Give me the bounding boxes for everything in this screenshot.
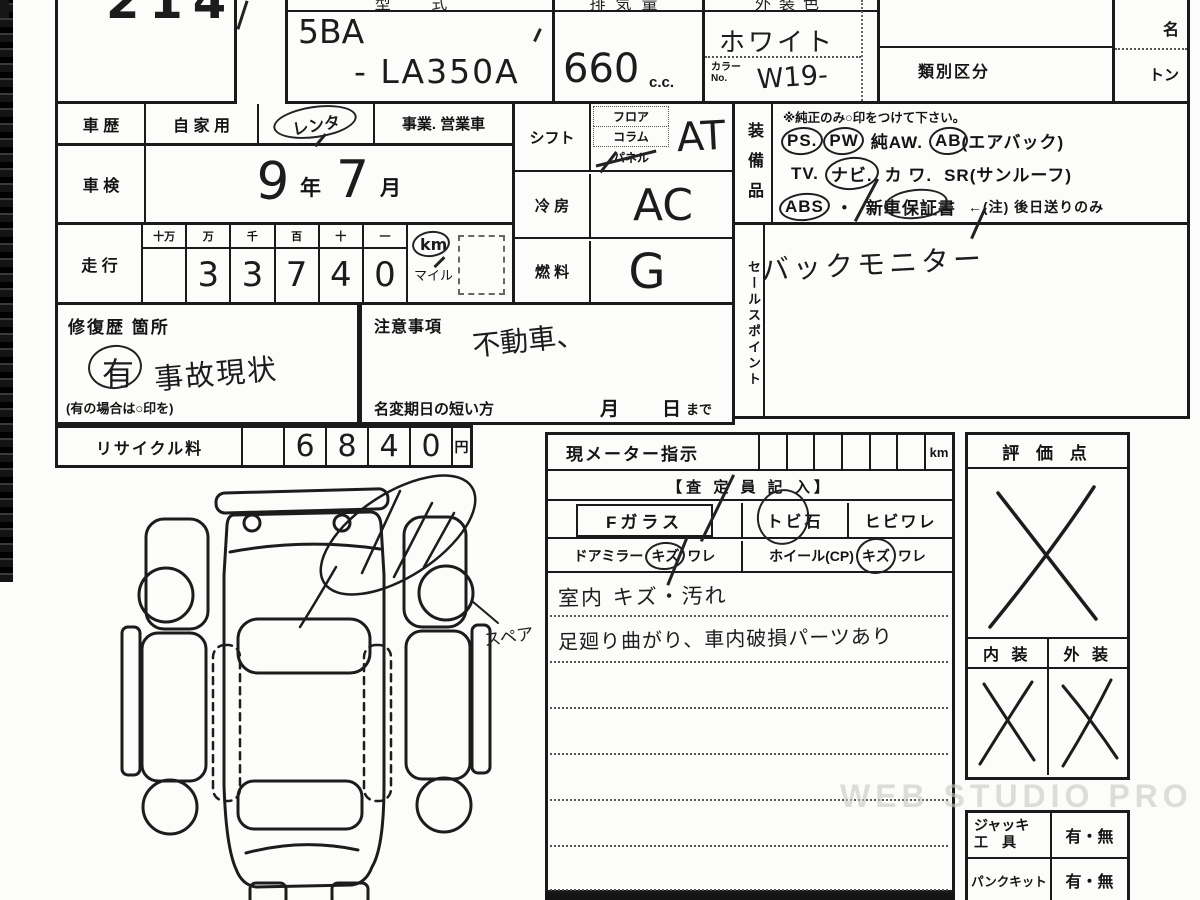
inspection-year-value: 9 bbox=[254, 151, 291, 213]
history-label: 車 歴 bbox=[58, 104, 146, 143]
mileage-col-1: 一 0 bbox=[364, 225, 408, 302]
side-strip-left bbox=[122, 627, 140, 775]
equipment-tv-text: TV. bbox=[791, 164, 819, 184]
assessor-notes: 室内 キズ・汚れ 足廻り曲がり、車内破損パーツあり bbox=[548, 575, 952, 893]
repair-value: 事故現状 bbox=[152, 346, 279, 399]
caution-label: 注意事項 bbox=[374, 313, 442, 337]
repair-label: 修復歴 箇所 bbox=[68, 313, 170, 338]
color-value: ホワイト bbox=[719, 22, 835, 59]
assessor-fglass-text: Fガラス bbox=[576, 504, 713, 537]
name-ton-cell: 名 トン bbox=[1115, 0, 1190, 104]
rename-label: 名変期日の短い方 bbox=[374, 398, 494, 419]
shift-option-column: コラム bbox=[593, 126, 669, 147]
color-cell: 外装色 ホワイト カラー No. W19- bbox=[705, 0, 880, 104]
meter-cell bbox=[896, 435, 924, 469]
notes-line-1: 室内 キズ・汚れ bbox=[558, 580, 728, 613]
history-option-business: 事業. 営業車 bbox=[375, 104, 512, 143]
mileage-header-10: 十 bbox=[320, 225, 362, 249]
front-seats bbox=[238, 619, 370, 673]
assessor-row-1: Fガラス トビ石 ヒビワレ bbox=[548, 503, 952, 539]
shift-option-panel: パネル bbox=[593, 147, 669, 168]
cooling-value: AC bbox=[591, 174, 735, 237]
interior-exterior-header: 内 装 外 装 bbox=[968, 637, 1127, 669]
displacement-unit: c.c. bbox=[649, 74, 674, 91]
caution-value: 不動車、 bbox=[470, 313, 586, 364]
jack-label-line2: 工 具 bbox=[974, 834, 1044, 851]
fuel-row: 燃 料 G bbox=[515, 241, 732, 302]
inspection-month-value: 7 bbox=[336, 150, 369, 210]
equipment-warranty-text: 新車保証書 bbox=[866, 199, 956, 218]
circle-mark bbox=[854, 536, 897, 575]
notes-line-2: 足廻り曲がり、車内破損パーツあり bbox=[558, 620, 893, 655]
mileage-digit-10k: 3 bbox=[187, 249, 229, 301]
jack-value: 有・無 bbox=[1052, 813, 1127, 857]
shift-label: シフト bbox=[515, 104, 591, 170]
sill-right-dashed bbox=[364, 645, 391, 801]
ruled-line bbox=[550, 615, 948, 617]
circle-mark bbox=[644, 540, 686, 571]
interior-mark-cell bbox=[968, 669, 1049, 775]
mileage-row: 走 行 十万 万 3 千 3 百 7 十 4 一 bbox=[55, 225, 515, 305]
jack-row: ジャッキ 工 具 有・無 bbox=[968, 813, 1127, 859]
assessor-crack-text: ヒビワレ bbox=[864, 508, 936, 532]
interior-x-mark bbox=[972, 674, 1042, 770]
ruled-line bbox=[550, 707, 948, 709]
ruled-line bbox=[550, 889, 948, 891]
mileage-header-100k: 十万 bbox=[143, 225, 185, 249]
shift-value: AT bbox=[667, 102, 734, 171]
inspection-row: 車 検 9 年 7 月 bbox=[55, 146, 515, 225]
mileage-dashed-box bbox=[458, 235, 505, 295]
mileage-header-1k: 千 bbox=[231, 225, 273, 249]
equipment-line-3: ABS ・ 新車保証書 ←(注) 後日送りのみ bbox=[785, 194, 1104, 219]
evaluation-x-mark bbox=[968, 469, 1127, 637]
ruled-line bbox=[550, 845, 948, 847]
repair-hint: (有の場合は○印を) bbox=[66, 398, 174, 417]
scan-artifact-blob bbox=[0, 0, 9, 18]
meter-cell bbox=[786, 435, 814, 469]
equipment-navi: ナビ. bbox=[831, 161, 873, 186]
front-marker-left bbox=[244, 515, 260, 531]
equipment-line-2: TV. ナビ. カ ワ. SR(サンルーフ) bbox=[791, 161, 1072, 186]
caution-box: 注意事項 不動車、 bbox=[360, 305, 735, 390]
spare-leader-line bbox=[472, 601, 498, 623]
history-option-rental: レンタ bbox=[259, 104, 375, 143]
rename-until: まで bbox=[686, 399, 712, 418]
ton-label: トン bbox=[1149, 64, 1179, 85]
sill-left-dashed bbox=[213, 645, 240, 801]
assessor-wheel-ware-text: ワレ bbox=[898, 546, 926, 566]
door-front-left bbox=[146, 519, 208, 629]
model-type-value-2: - LA350A bbox=[354, 52, 520, 91]
equipment-line-1: PS. PW 純AW. AB (エアバック) bbox=[787, 128, 1064, 153]
repair-box: 修復歴 箇所 有 事故現状 (有の場合は○印を) bbox=[55, 305, 360, 425]
shift-row: シフト フロア コラム パネル AT bbox=[515, 104, 732, 172]
sales-point-block: セールスポイント バックモニター bbox=[735, 225, 1190, 419]
color-no-value: W19- bbox=[756, 60, 829, 96]
rename-month: 月 bbox=[600, 394, 619, 421]
class-label: 類別区分 bbox=[918, 58, 990, 82]
equipment-dot: ・ bbox=[836, 194, 854, 219]
mileage-col-10k: 万 3 bbox=[187, 225, 231, 302]
interior-label: 内 装 bbox=[968, 639, 1049, 667]
equipment-warranty: 新車保証書 bbox=[866, 194, 956, 219]
inspection-year-unit: 年 bbox=[300, 172, 321, 202]
color-no-label-2: No. bbox=[711, 73, 741, 84]
ruled-line bbox=[550, 661, 948, 663]
assessor-header: 【査 定 員 記 入】 bbox=[548, 473, 952, 501]
shift-options: フロア コラム パネル bbox=[593, 106, 669, 170]
mileage-mile-unit: マイル bbox=[414, 265, 453, 284]
color-no-label-1: カラー bbox=[711, 62, 741, 73]
history-rental-text: レンタ bbox=[290, 108, 341, 140]
inspection-month-unit: 月 bbox=[380, 172, 401, 202]
color-label: 外装色 bbox=[705, 0, 877, 12]
assessor-wheel-kizu: キズ bbox=[862, 546, 890, 566]
meter-row: 現メーター指示 km bbox=[548, 435, 952, 471]
inspection-label: 車 検 bbox=[58, 146, 146, 222]
mileage-km-unit: km bbox=[420, 235, 447, 254]
scan-artifact-strip bbox=[0, 0, 13, 582]
car-diagram-area: スペア bbox=[100, 455, 540, 900]
evaluation-label: 評 価 点 bbox=[968, 435, 1127, 469]
tools-box: ジャッキ 工 具 有・無 パンクキット 有・無 bbox=[965, 810, 1130, 900]
car-top-view-diagram: スペア bbox=[100, 455, 540, 900]
kit-value: 有・無 bbox=[1052, 859, 1127, 900]
wheel-rear-left bbox=[143, 780, 197, 834]
jack-label: ジャッキ 工 具 bbox=[968, 813, 1052, 857]
door-rear-right bbox=[406, 631, 470, 779]
repair-mark: 有 bbox=[102, 349, 134, 395]
exterior-label: 外 装 bbox=[1049, 639, 1128, 667]
color-inner-divider-v bbox=[861, 0, 863, 101]
equipment-warranty-note: ←(注) 後日送りのみ bbox=[968, 197, 1104, 217]
equipment-block: 装備品 ※純正のみ○印をつけて下さい。 PS. PW 純AW. AB (エアバッ… bbox=[735, 104, 1190, 225]
name-label: 名 bbox=[1163, 16, 1179, 40]
mileage-digit-100k bbox=[143, 249, 185, 301]
kit-row: パンクキット 有・無 bbox=[968, 859, 1127, 900]
rename-row: 名変期日の短い方 月 日 まで bbox=[360, 390, 735, 425]
assessor-stone-text: トビ石 bbox=[766, 508, 823, 532]
mileage-digit-10: 4 bbox=[320, 249, 362, 301]
mileage-label: 走 行 bbox=[58, 225, 143, 302]
mileage-col-1k: 千 3 bbox=[231, 225, 275, 302]
equipment-sr-text: SR(サンルーフ) bbox=[944, 161, 1072, 186]
shift-block: シフト フロア コラム パネル AT 冷 房 AC 燃 料 G bbox=[515, 104, 735, 305]
equipment-kawa-text: カ ワ. bbox=[885, 161, 932, 186]
name-ton-divider bbox=[1115, 48, 1187, 50]
meter-label: 現メーター指示 bbox=[548, 435, 758, 469]
assessor-stone: トビ石 bbox=[743, 503, 849, 537]
equipment-aw-text: 純AW. bbox=[871, 128, 923, 153]
meter-cell bbox=[841, 435, 869, 469]
history-option-private: 自 家 用 bbox=[146, 104, 259, 143]
mileage-digit-1k: 3 bbox=[231, 249, 273, 301]
meter-cell bbox=[758, 435, 786, 469]
windshield-line bbox=[230, 544, 380, 552]
assessor-fglass: Fガラス bbox=[548, 503, 743, 537]
displacement-header-cut: 排気量 bbox=[555, 0, 702, 12]
equipment-ps: PS. bbox=[787, 131, 817, 151]
model-type-header-cut: 型 式 bbox=[288, 0, 552, 12]
bottom-black-bar bbox=[545, 893, 955, 900]
class-inner-divider bbox=[880, 46, 1112, 48]
stock-number-box: 2147 bbox=[55, 0, 237, 104]
displacement-label: 排気量 bbox=[555, 0, 702, 12]
rear-seats bbox=[238, 781, 362, 829]
mileage-header-100: 百 bbox=[276, 225, 318, 249]
ruled-line bbox=[550, 753, 948, 755]
circle-mark bbox=[824, 155, 880, 193]
car-body-outline bbox=[224, 512, 384, 887]
mileage-col-10: 十 4 bbox=[320, 225, 364, 302]
meter-cell bbox=[813, 435, 841, 469]
assessor-wheel: ホイール(CP) キズ ワレ bbox=[743, 541, 952, 571]
jack-label-line1: ジャッキ bbox=[974, 817, 1044, 834]
assessor-mirror-kizu: キズ bbox=[651, 546, 679, 566]
displacement-cell: 排気量 660 c.c. bbox=[555, 0, 705, 104]
assessor-wheel-label: ホイール(CP) bbox=[769, 546, 854, 566]
mileage-col-100k: 十万 bbox=[143, 225, 187, 302]
meter-unit: km bbox=[924, 435, 952, 469]
model-type-cell: 型 式 5BA - LA350A bbox=[285, 0, 555, 104]
auction-sheet: 2147 型 式 5BA - LA350A 排気量 660 c.c. 外装色 ホ… bbox=[0, 0, 1200, 900]
assessor-crack: ヒビワレ bbox=[849, 503, 952, 537]
pen-tick bbox=[533, 28, 541, 42]
meter-digit-cells bbox=[758, 435, 924, 469]
evaluation-box: 評 価 点 内 装 外 装 bbox=[965, 432, 1130, 780]
mileage-digit-columns: 十万 万 3 千 3 百 7 十 4 一 0 bbox=[143, 225, 408, 302]
class-cell: 類別区分 bbox=[880, 0, 1115, 104]
mileage-header-10k: 万 bbox=[187, 225, 229, 249]
displacement-value: 660 bbox=[563, 46, 639, 92]
equipment-label: 装備品 bbox=[735, 104, 773, 222]
mileage-header-1: 一 bbox=[364, 225, 406, 249]
sales-point-value: バックモニター bbox=[760, 237, 986, 289]
shift-option-panel-text: パネル bbox=[613, 151, 649, 165]
mileage-col-100: 百 7 bbox=[276, 225, 320, 302]
stock-number: 2147 bbox=[106, 0, 237, 30]
ruled-line bbox=[550, 799, 948, 801]
exterior-x-mark bbox=[1053, 674, 1123, 770]
mileage-digit-100: 7 bbox=[276, 249, 318, 301]
circle-mark bbox=[822, 125, 866, 157]
circle-mark bbox=[778, 190, 831, 222]
assessor-mirror-ware-text: ワレ bbox=[687, 546, 715, 566]
equipment-pw: PW bbox=[829, 131, 858, 151]
meter-cell bbox=[869, 435, 897, 469]
cooling-label: 冷 房 bbox=[515, 174, 591, 237]
door-rear-left bbox=[142, 633, 206, 781]
interior-exterior-marks bbox=[968, 669, 1127, 775]
mileage-unit-stack: km マイル bbox=[410, 231, 458, 299]
model-type-label: 型 式 bbox=[288, 0, 552, 12]
assessor-mirror: ドアミラー キズ ワレ bbox=[548, 541, 743, 571]
model-type-value-1: 5BA bbox=[298, 12, 364, 51]
cooling-row: 冷 房 AC bbox=[515, 174, 732, 239]
mileage-digit-1: 0 bbox=[364, 249, 406, 301]
color-no-label: カラー No. bbox=[711, 62, 741, 84]
equipment-ab: AB bbox=[935, 131, 962, 151]
equipment-ab-note: (エアバック) bbox=[962, 128, 1065, 153]
meter-box: 現メーター指示 km 【査 定 員 記 入】 Fガラス トビ石 ヒビワレ bbox=[545, 432, 955, 893]
rear-window-line bbox=[246, 845, 358, 853]
history-row: 車 歴 自 家 用 レンタ 事業. 営業車 bbox=[55, 104, 515, 146]
fuel-value: G bbox=[575, 241, 719, 302]
circle-mark bbox=[780, 125, 825, 157]
rename-day: 日 bbox=[662, 394, 681, 421]
color-header-cut: 外装色 bbox=[705, 0, 877, 12]
wheel-rear-right bbox=[417, 778, 471, 832]
equipment-abs: ABS bbox=[785, 197, 824, 217]
equipment-note: ※純正のみ○印をつけて下さい。 bbox=[783, 107, 965, 126]
pen-slash-mark bbox=[236, 0, 248, 29]
kit-label: パンクキット bbox=[968, 859, 1052, 900]
door-front-right bbox=[404, 517, 466, 627]
exterior-mark-cell bbox=[1049, 669, 1128, 775]
assessor-mirror-label: ドアミラー bbox=[574, 546, 644, 566]
assessor-row-2: ドアミラー キズ ワレ ホイール(CP) キズ ワレ bbox=[548, 541, 952, 573]
shift-option-floor: フロア bbox=[593, 106, 669, 126]
